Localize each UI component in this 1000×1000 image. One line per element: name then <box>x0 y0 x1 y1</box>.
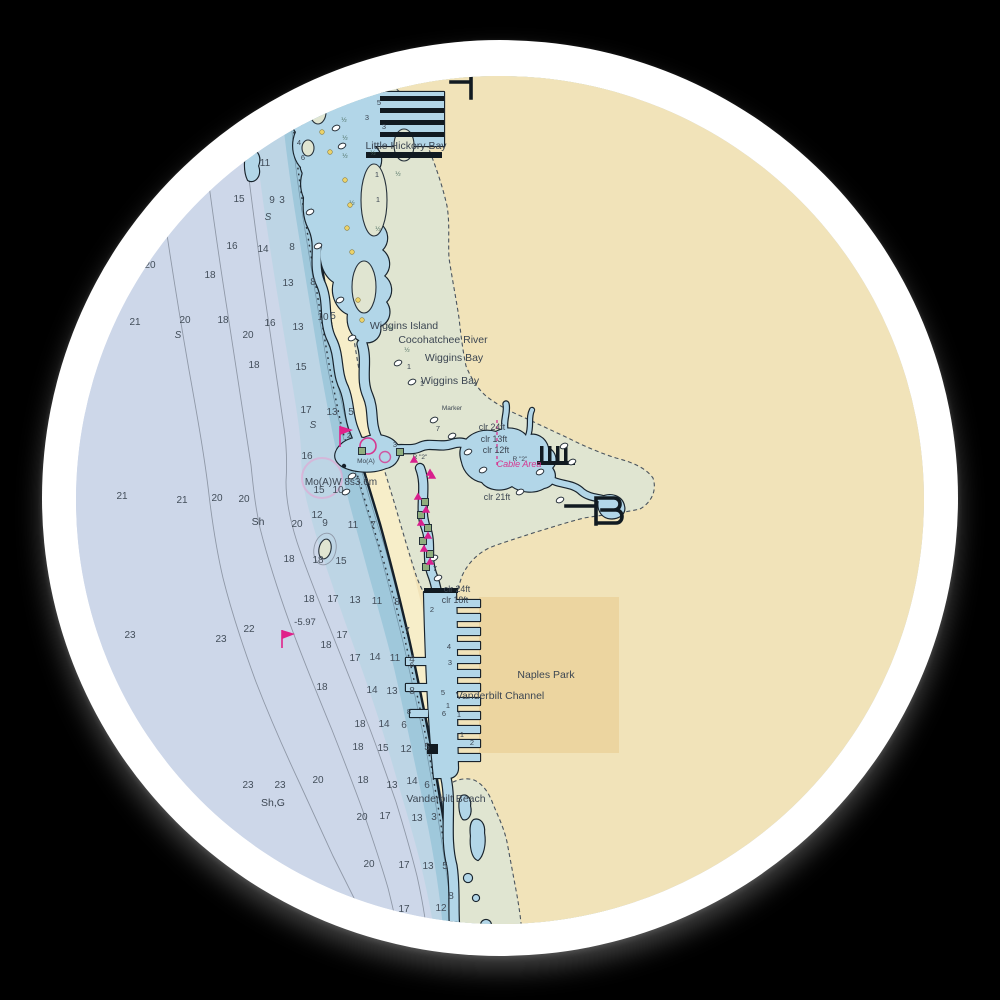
channel-depth: 1 <box>407 362 411 371</box>
sounding: 3 <box>279 195 285 206</box>
channel-depth: 6 <box>410 660 414 669</box>
sounding: 14 <box>369 652 381 663</box>
sounding: 7 <box>404 626 410 637</box>
label-clr24b: clr 24ft <box>444 584 471 594</box>
sounding: 23 <box>242 780 254 791</box>
sounding: 20 <box>356 812 368 823</box>
channel-depth: 3 <box>382 122 386 131</box>
sounding: 13 <box>422 861 434 872</box>
channel-depth: 2 <box>347 431 351 440</box>
channel-depth: 1 <box>375 170 379 179</box>
sounding: 20 <box>238 494 250 505</box>
label-vanderbilt-channel: Vanderbilt Channel <box>456 690 545 702</box>
sounding: 8 <box>310 277 316 288</box>
spoil-dot <box>356 298 361 303</box>
sounding: 10 <box>317 312 329 323</box>
sounding: 13 <box>282 278 294 289</box>
nautical-chart: Little Hickory Bay Wiggins Island Cocoha… <box>76 76 924 924</box>
label-little-hickory-bay: Little Hickory Bay <box>365 140 447 152</box>
channel-depth: 3 <box>448 658 452 667</box>
half-depth: ½ <box>341 116 347 124</box>
label-cocohatchee-river: Cocohatchee River <box>398 334 488 346</box>
nautical-chart-circle: Little Hickory Bay Wiggins Island Cocoha… <box>76 76 924 924</box>
spoil-dot <box>345 226 350 231</box>
sounding: 18 <box>217 315 229 326</box>
label-clr24a: clr 24ft <box>479 422 506 432</box>
sounding: 14 <box>378 719 390 730</box>
channel-depth: 7 <box>436 424 440 433</box>
dock-prong <box>548 446 552 461</box>
canal-finger-bar <box>380 132 444 137</box>
sounding: 23 <box>215 634 227 645</box>
sounding: 21 <box>116 491 128 502</box>
channel-depth: 5 <box>441 688 445 697</box>
sounding: 23 <box>274 780 286 791</box>
sounding: 18 <box>312 555 324 566</box>
sounding: 20 <box>363 859 375 870</box>
sounding: 20 <box>211 493 223 504</box>
green-daymark <box>425 525 432 532</box>
marker-tag: R "2" <box>513 456 528 463</box>
canal-finger-bar <box>380 108 444 113</box>
sounding: 18 <box>204 270 216 281</box>
label-vanderbilt-beach: Vanderbilt Beach <box>406 793 485 805</box>
sounding: 17 <box>336 630 348 641</box>
sounding: 12 <box>400 744 412 755</box>
sounding: 15 <box>377 743 389 754</box>
sounding: 17 <box>379 811 391 822</box>
sounding: 18 <box>354 719 366 730</box>
sounding: 20 <box>291 519 303 530</box>
spoil-dot <box>350 250 355 255</box>
green-daymark <box>422 499 429 506</box>
sounding: 11 <box>390 653 401 664</box>
sand-mark: S <box>265 212 272 223</box>
sounding: 6 <box>401 720 407 731</box>
label-benchmark-pos: 5.96 <box>76 407 85 418</box>
label-clr12: clr 12ft <box>483 445 510 455</box>
sounding: 18 <box>357 775 369 786</box>
label-wiggins-bay-2: Wiggins Bay <box>421 375 480 387</box>
sounding: 9 <box>269 195 275 206</box>
channel-depth: 8 <box>407 707 411 716</box>
sounding: 11 <box>260 158 271 169</box>
label-shg: Sh,G <box>261 797 285 809</box>
channel-depth: 1 <box>457 710 461 719</box>
label-clr21: clr 21ft <box>484 492 511 502</box>
sounding: 18 <box>320 640 332 651</box>
half-depth: ½ <box>395 170 401 178</box>
sounding: 22 <box>243 624 255 635</box>
canal-finger-bar <box>380 120 444 125</box>
sounding: 11 <box>348 520 359 531</box>
sounding: 20 <box>179 315 191 326</box>
sounding: 18 <box>283 554 295 565</box>
sounding: 16 <box>301 451 313 462</box>
sounding: 18 <box>352 742 364 753</box>
channel-depth: 4 <box>447 642 451 651</box>
label-marker: Marker <box>442 405 463 412</box>
label-sh: Sh <box>252 516 265 528</box>
half-depth: ½ <box>370 149 376 157</box>
sand-mark: S <box>310 420 317 431</box>
sounding: 12 <box>435 903 447 914</box>
sounding: 14 <box>257 244 269 255</box>
sounding: 15 <box>335 556 347 567</box>
sounding: 17 <box>300 405 312 416</box>
sounding: 21 <box>129 317 141 328</box>
half-depth: ½ <box>342 152 348 160</box>
label-wiggins-bay-1: Wiggins Bay <box>425 352 484 364</box>
green-daymark <box>397 449 404 456</box>
sounding: 18 <box>248 360 260 371</box>
hickory-bay-pier <box>366 152 442 158</box>
label-naples-park: Naples Park <box>517 669 575 681</box>
spoil-dot <box>348 203 353 208</box>
spoil-dot <box>328 150 333 155</box>
channel-depth: 1 <box>446 701 450 710</box>
spoil-dot <box>360 318 365 323</box>
sounding: 16 <box>226 241 238 252</box>
sounding: 21 <box>176 495 188 506</box>
half-depth: ½ <box>387 324 393 332</box>
channel-depth: 3 <box>365 113 369 122</box>
channel-depth: 1 <box>460 730 464 739</box>
channel-depth: 1 <box>376 195 380 204</box>
sounding: 8 <box>409 686 415 697</box>
sounding: 20 <box>144 260 156 271</box>
sounding: 11 <box>372 596 383 607</box>
channel-depth: 5 <box>377 98 381 107</box>
sounding: 14 <box>406 776 418 787</box>
channel-depth: 7 <box>433 564 437 573</box>
label-benchmark-neg: -5.97 <box>294 617 316 628</box>
sounding: 14 <box>366 685 378 696</box>
sounding: 15 <box>295 362 307 373</box>
dock-prong <box>556 446 560 461</box>
sounding: 5 <box>424 742 430 753</box>
sounding: 17 <box>349 653 361 664</box>
sounding: 3 <box>431 812 437 823</box>
sounding: 13 <box>411 813 423 824</box>
channel-depth: 1 <box>420 379 424 388</box>
label-wiggins-island: Wiggins Island <box>370 320 438 332</box>
half-depth: ½ <box>404 346 410 354</box>
channel-depth: 3 <box>393 440 397 449</box>
sounding: 6 <box>424 780 430 791</box>
sounding: 5 <box>442 861 448 872</box>
sand-mark: S <box>175 330 182 341</box>
sounding: 8 <box>289 242 295 253</box>
spoil-dot <box>343 178 348 183</box>
half-depth: ½ <box>375 225 381 233</box>
light-dot <box>342 464 346 468</box>
spoil-dot <box>320 130 325 135</box>
sounding: 17 <box>398 904 410 915</box>
sounding: 13 <box>386 686 398 697</box>
sounding: 13 <box>386 780 398 791</box>
sounding: 17 <box>327 594 339 605</box>
channel-depth: 4 <box>297 138 301 147</box>
sounding: 20 <box>312 775 324 786</box>
label-light-small: Mo(A) <box>357 458 375 465</box>
sounding: 18 <box>303 594 315 605</box>
channel-depth: 2 <box>470 738 474 747</box>
sounding: 17 <box>398 860 410 871</box>
sticker-canvas: Little Hickory Bay Wiggins Island Cocoha… <box>0 0 1000 1000</box>
sounding: 9 <box>322 518 328 529</box>
sounding: 23 <box>124 630 136 641</box>
sounding: 18 <box>316 682 328 693</box>
sounding: 8 <box>394 597 400 608</box>
channel-depth: 6 <box>442 709 446 718</box>
sounding: 13 <box>292 322 304 333</box>
channel-depth: 2 <box>430 605 434 614</box>
sounding: 13 <box>349 595 361 606</box>
label-clr13: clr 13ft <box>481 434 508 444</box>
sounding: 7 <box>370 520 376 531</box>
sounding: 13 <box>326 407 338 418</box>
sounding: 8 <box>448 891 454 902</box>
sounding: 15 <box>233 194 245 205</box>
sounding: 5 <box>330 311 336 322</box>
sounding: 5 <box>348 407 354 418</box>
label-clr18: clr 18ft <box>442 595 469 605</box>
half-depth: ½ <box>342 134 348 142</box>
canal-finger-bar <box>380 96 444 101</box>
sounding: 16 <box>264 318 276 329</box>
channel-depth: 6 <box>301 153 305 162</box>
green-daymark <box>359 448 366 455</box>
sounding: 15 <box>313 485 325 496</box>
sounding: 20 <box>242 330 254 341</box>
